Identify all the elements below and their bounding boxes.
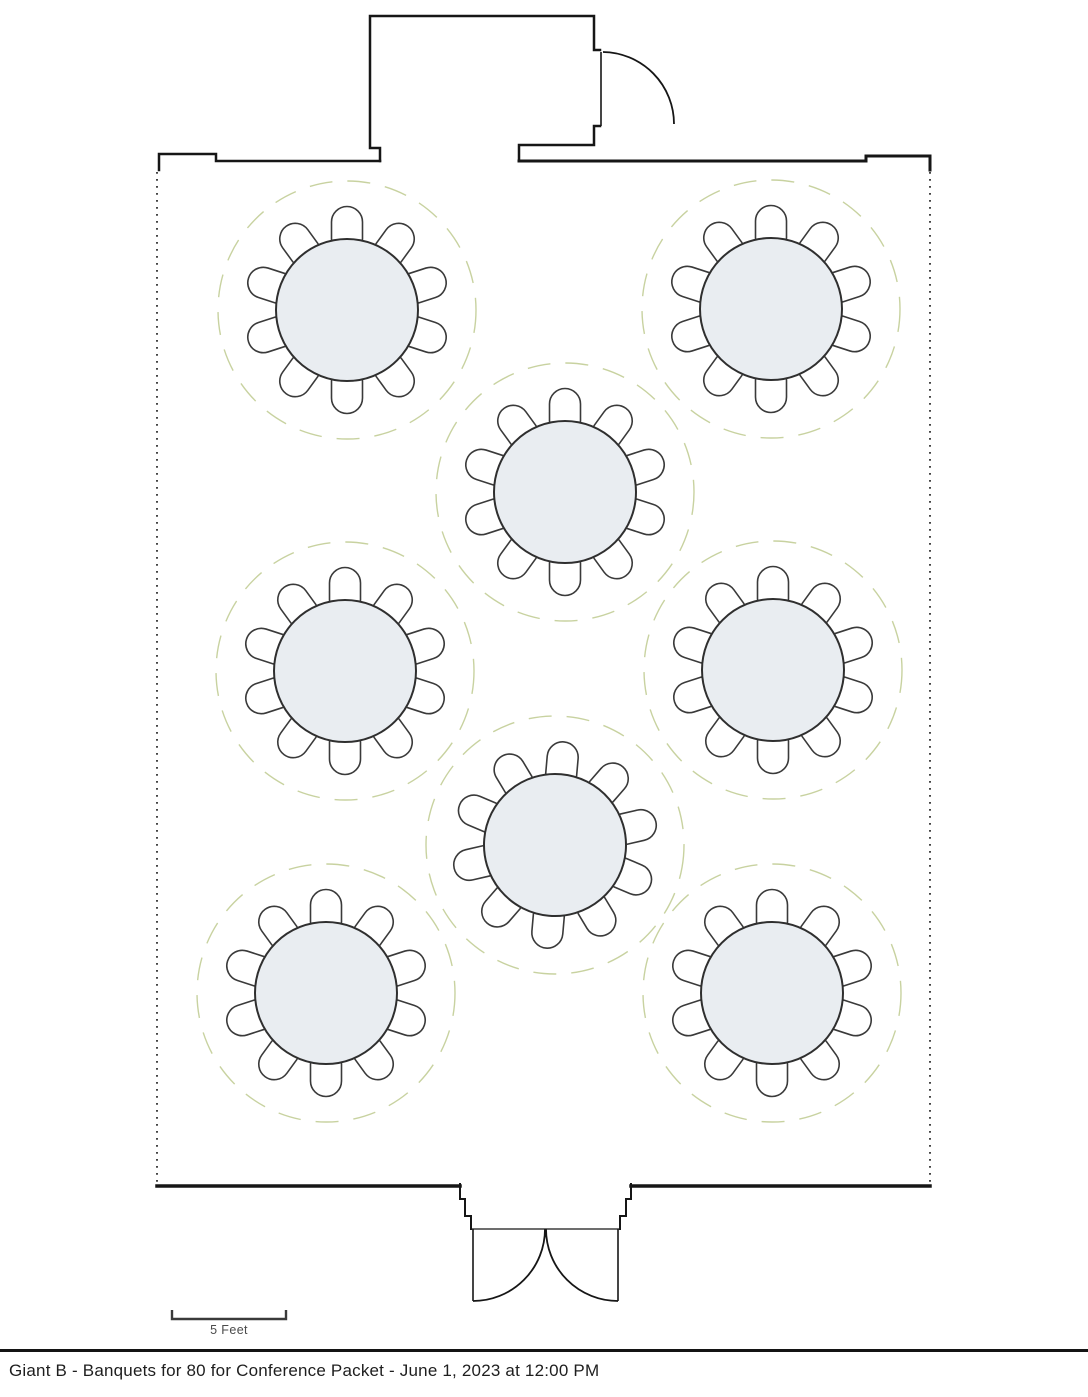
top-wall-right [519,156,930,170]
table-7 [197,864,455,1122]
table-5 [644,541,902,799]
chair [758,737,789,774]
chair [550,559,581,596]
chair [330,568,361,605]
round-table-top [700,238,842,380]
round-table-top [255,922,397,1064]
table-8 [643,864,901,1122]
bottom-recess-right-jamb [620,1184,631,1229]
door-swing-arc [603,52,674,124]
scale-bar-label: 5 Feet [172,1323,286,1337]
chair [758,567,789,604]
chair [757,890,788,927]
vestibule-door [601,52,674,126]
vestibule-wall-lower [519,126,600,161]
tables-layer [197,180,902,1122]
round-table-top [274,600,416,742]
floor-plan-page: 5 Feet Giant B - Banquets for 80 for Con… [0,0,1088,1397]
floor-plan-canvas [0,0,1088,1397]
bottom-recess-left-jamb [460,1184,471,1229]
chair [757,1060,788,1097]
scale-bar [172,1310,286,1319]
chair [311,1060,342,1097]
table-2 [642,180,900,438]
main-entry-double-door [471,1229,620,1301]
round-table-top [276,239,418,381]
chair [311,890,342,927]
chair [332,207,363,244]
right-door-swing-arc [546,1229,618,1301]
left-door-swing-arc [473,1229,545,1301]
table-4 [216,542,474,800]
round-table-top [494,421,636,563]
chair [332,377,363,414]
round-table-top [701,922,843,1064]
vestibule-wall [370,16,600,161]
page-title: Giant B - Banquets for 80 for Conference… [9,1361,1079,1381]
footer-divider [0,1349,1088,1352]
chair [550,389,581,426]
chair [756,376,787,413]
chair [756,206,787,243]
chair [330,738,361,775]
table-1 [218,181,476,439]
round-table-top [702,599,844,741]
table-3 [436,363,694,621]
top-wall-left [159,154,380,170]
